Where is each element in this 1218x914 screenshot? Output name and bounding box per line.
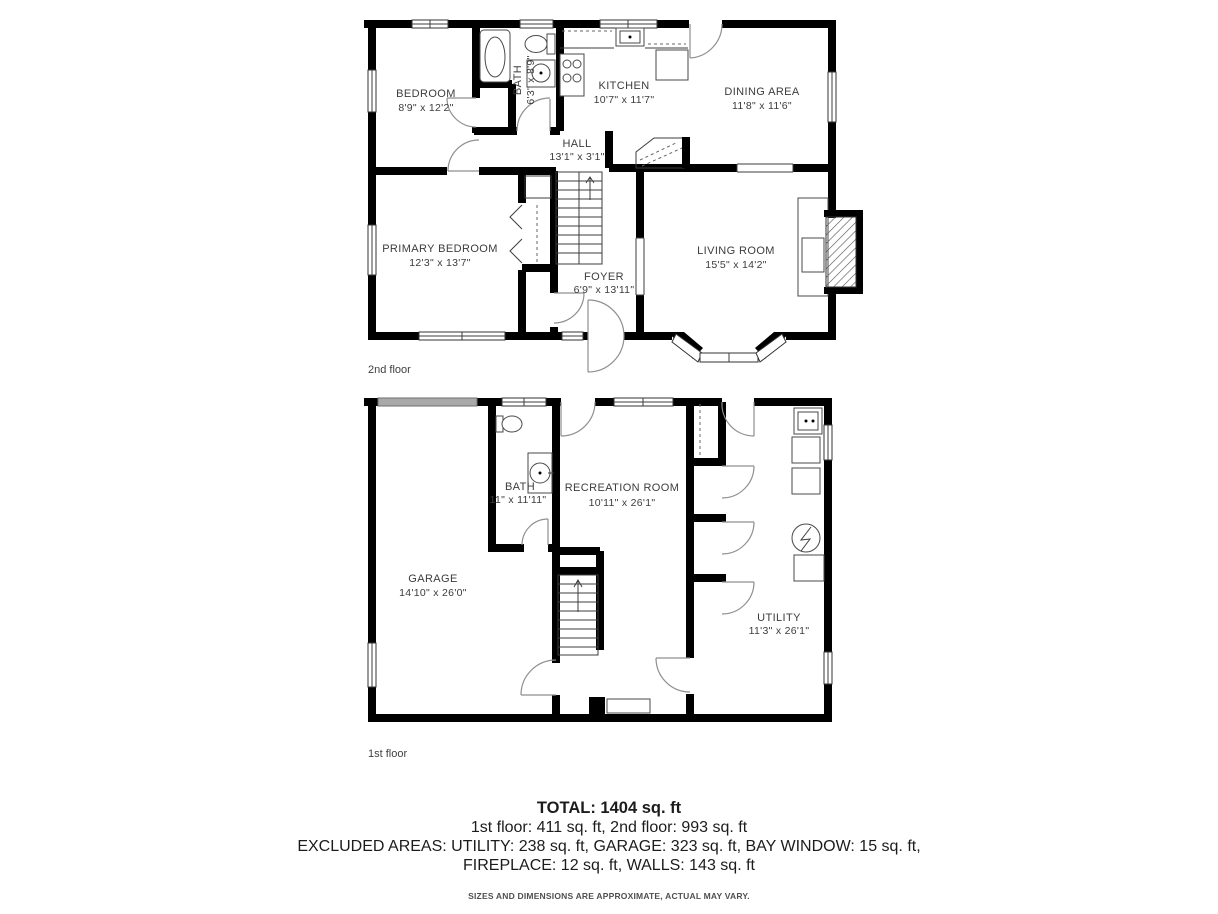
window bbox=[520, 20, 553, 28]
bay-window bbox=[668, 332, 790, 362]
room-label-hall: HALL bbox=[562, 138, 591, 150]
kitchen-sink-icon bbox=[616, 28, 644, 46]
room-label-primary: PRIMARY BEDROOM bbox=[382, 243, 498, 255]
room-label-garage: GARAGE bbox=[408, 573, 457, 585]
room-dims-living-room: 15'5" x 14'2" bbox=[705, 259, 767, 271]
room-label-foyer: FOYER bbox=[584, 271, 624, 283]
staircase-up bbox=[556, 172, 602, 264]
floor1-walls bbox=[364, 398, 832, 722]
room-label-living-room: LIVING ROOM bbox=[697, 245, 775, 257]
closet-shelf bbox=[525, 176, 551, 265]
room-dims-foyer: 6'9" x 13'11" bbox=[574, 284, 635, 296]
floorplan-page: BEDROOM 8'9" x 12'2" BATH 6'3" x 8'9" KI… bbox=[0, 0, 1218, 914]
window bbox=[824, 652, 832, 684]
room-dims-recreation: 10'11" x 26'1" bbox=[589, 497, 656, 509]
summary-total: TOTAL: 1404 sq. ft bbox=[0, 799, 1218, 818]
room-dims-bedroom: 8'9" x 12'2" bbox=[398, 102, 453, 114]
door-bath1 bbox=[522, 519, 548, 545]
room-label-dining-area: DINING AREA bbox=[724, 86, 800, 98]
room-dims-garage: 14'10" x 26'0" bbox=[399, 587, 467, 599]
room-label-kitchen: KITCHEN bbox=[598, 80, 649, 92]
summary-floors: 1st floor: 411 sq. ft, 2nd floor: 993 sq… bbox=[0, 818, 1218, 837]
staircase-down bbox=[558, 575, 598, 655]
window bbox=[502, 398, 546, 406]
room-label-utility: UTILITY bbox=[757, 612, 801, 624]
window bbox=[419, 332, 505, 340]
window bbox=[828, 72, 836, 122]
room-dims-bath1: 11" x 11'11" bbox=[490, 494, 547, 506]
corner-closet bbox=[636, 137, 690, 168]
door-closet-4 bbox=[722, 582, 754, 614]
room-dims-utility: 11'3" x 26'1" bbox=[749, 625, 810, 637]
washer-icon bbox=[792, 437, 820, 463]
toilet-icon bbox=[496, 416, 522, 432]
window bbox=[368, 643, 376, 687]
door-threshold bbox=[607, 699, 650, 713]
room-label-bath2: BATH bbox=[512, 65, 524, 95]
summary-excluded-2: FIREPLACE: 12 sq. ft, WALLS: 143 sq. ft bbox=[0, 856, 1218, 875]
floorplan-drawing: BEDROOM 8'9" x 12'2" BATH 6'3" x 8'9" KI… bbox=[0, 0, 1218, 914]
door-recreation bbox=[561, 402, 595, 436]
room-label-recreation: RECREATION ROOM bbox=[565, 482, 680, 494]
garage-door bbox=[378, 398, 477, 406]
window bbox=[368, 225, 376, 275]
fireplace-icon bbox=[798, 198, 863, 296]
door-primary-bedroom bbox=[448, 140, 479, 171]
bifold-closet-doors bbox=[510, 205, 522, 263]
window bbox=[562, 332, 583, 340]
cased-opening bbox=[636, 164, 793, 295]
door-back bbox=[690, 24, 722, 58]
window bbox=[824, 425, 832, 460]
door-closet-3 bbox=[722, 522, 754, 554]
bathtub-icon bbox=[480, 30, 510, 82]
stairs-arrow-icon bbox=[586, 177, 594, 200]
window bbox=[614, 398, 673, 406]
door-foyer-closet bbox=[554, 293, 584, 323]
door-garage bbox=[521, 660, 556, 695]
summary-excluded-1: EXCLUDED AREAS: UTILITY: 238 sq. ft, GAR… bbox=[0, 837, 1218, 856]
toilet-icon bbox=[525, 34, 555, 54]
room-label-bath1: BATH bbox=[505, 481, 535, 493]
stove-icon bbox=[560, 54, 584, 96]
stairs-arrow-icon bbox=[574, 580, 582, 612]
floor1-caption: 1st floor bbox=[368, 748, 407, 760]
room-dims-primary: 12'3" x 13'7" bbox=[409, 257, 471, 269]
room-dims-bath2: 6'3" x 8'9" bbox=[525, 55, 537, 104]
door-rec-utility bbox=[656, 658, 690, 692]
door-entry bbox=[588, 300, 624, 372]
room-dims-dining-area: 11'8" x 11'6" bbox=[732, 100, 792, 112]
appliance-box bbox=[794, 555, 824, 581]
summary-disclaimer: SIZES AND DIMENSIONS ARE APPROXIMATE, AC… bbox=[0, 891, 1218, 901]
door-utility bbox=[722, 402, 754, 436]
floor1-plan: BATH 11" x 11'11" RECREATION ROOM 10'11"… bbox=[364, 398, 832, 722]
area-summary: TOTAL: 1404 sq. ft 1st floor: 411 sq. ft… bbox=[0, 799, 1218, 901]
utility-sink-icon bbox=[794, 408, 822, 434]
window bbox=[600, 20, 657, 28]
wall-pier bbox=[589, 697, 605, 722]
room-label-bedroom: BEDROOM bbox=[396, 88, 456, 100]
window bbox=[368, 70, 376, 112]
electric-symbol-icon bbox=[792, 524, 820, 552]
floor2-caption: 2nd floor bbox=[368, 364, 411, 376]
window bbox=[412, 20, 448, 28]
door-closet-2 bbox=[722, 466, 754, 498]
room-dims-kitchen: 10'7" x 11'7" bbox=[594, 94, 655, 106]
dryer-icon bbox=[792, 468, 820, 494]
room-dims-hall: 13'1" x 3'1" bbox=[549, 151, 604, 163]
floor2-plan: BEDROOM 8'9" x 12'2" BATH 6'3" x 8'9" KI… bbox=[364, 20, 863, 372]
